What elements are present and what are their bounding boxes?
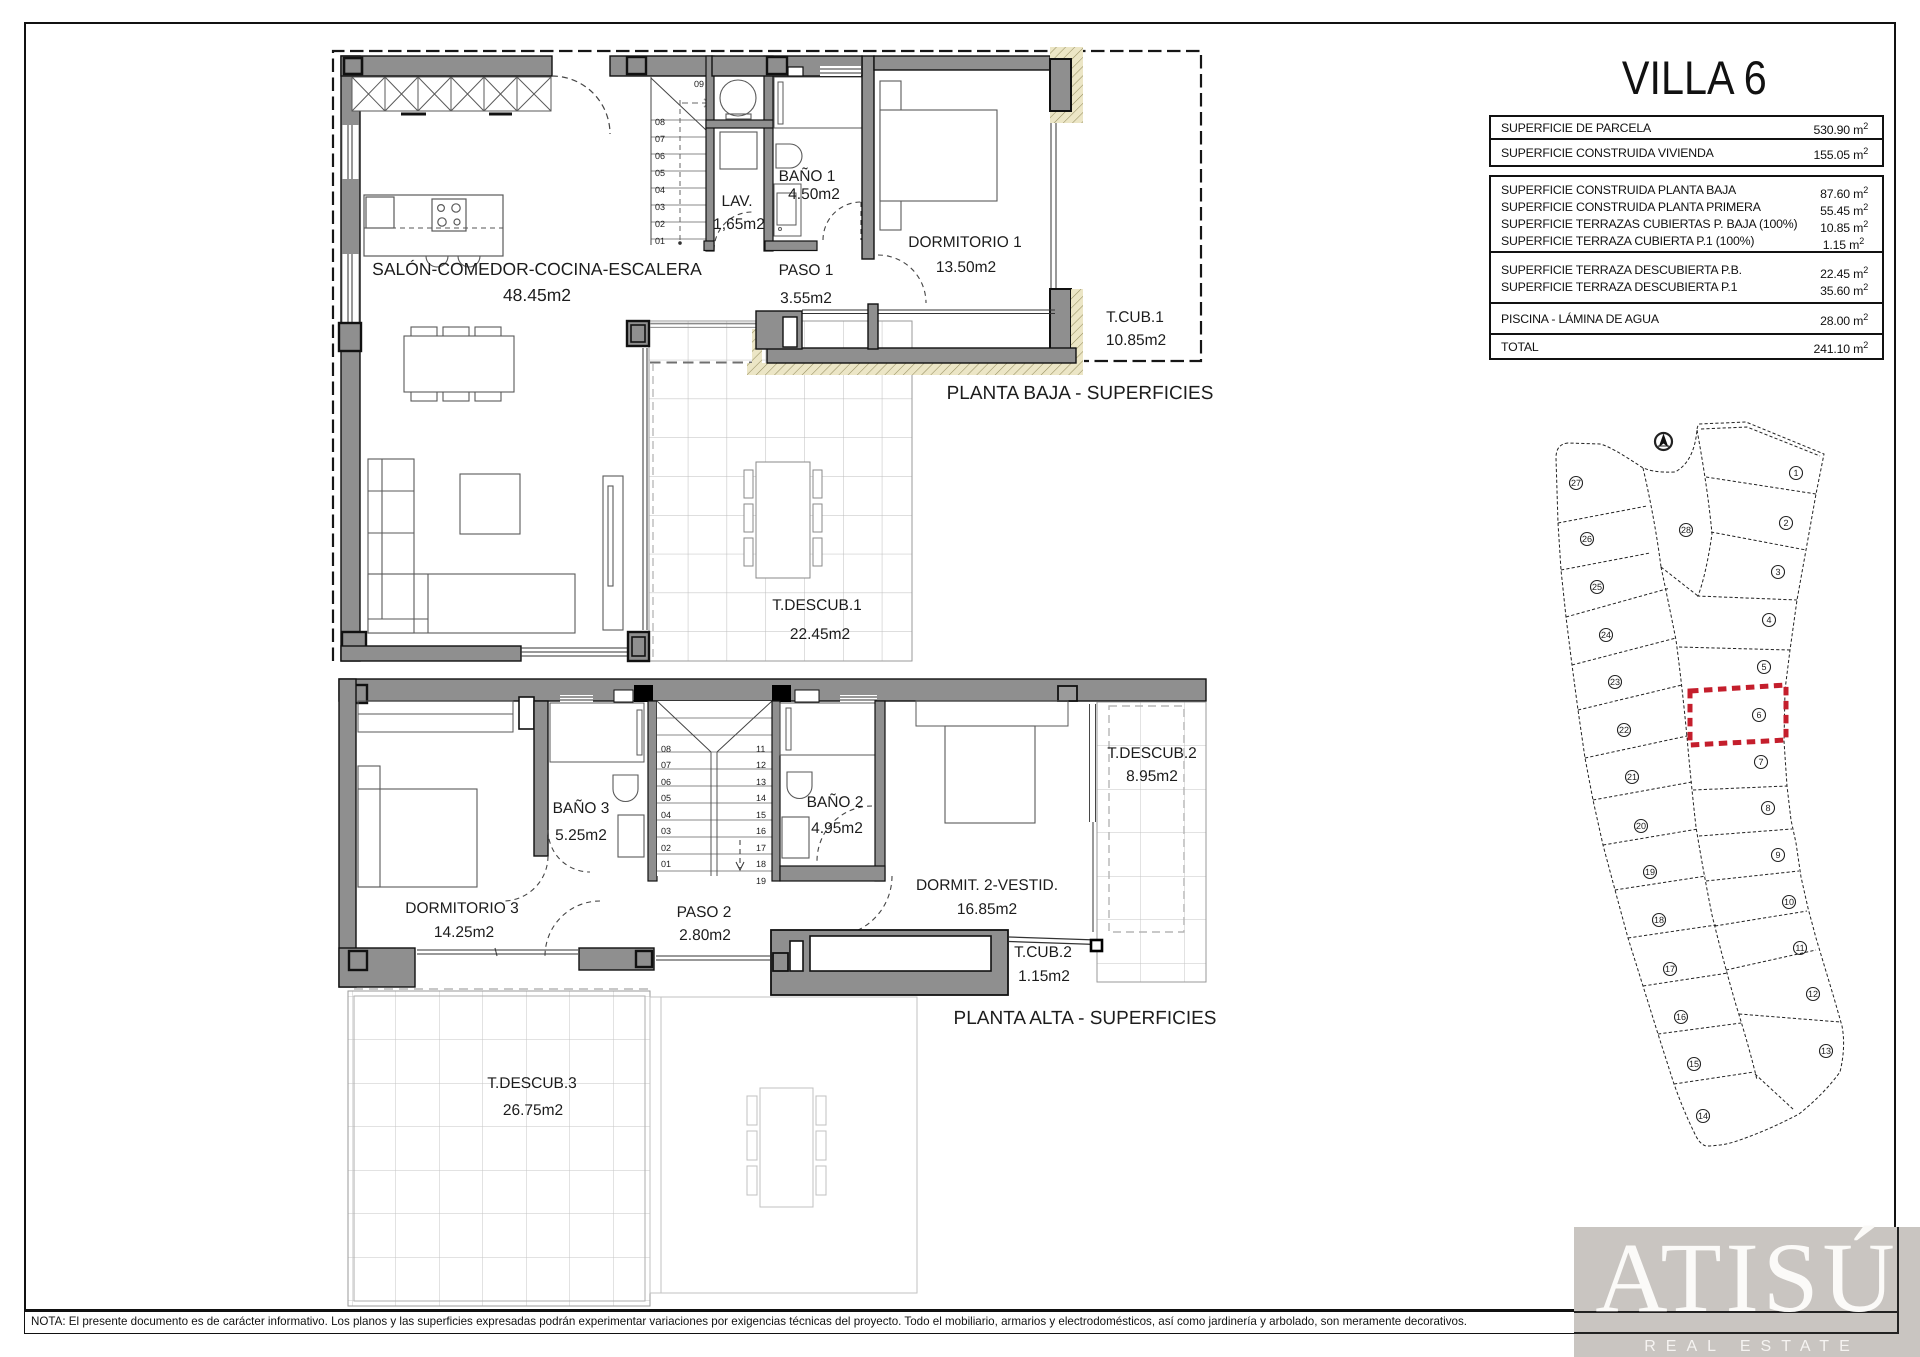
svg-text:BAÑO 1: BAÑO 1 bbox=[779, 167, 836, 185]
svg-text:11: 11 bbox=[756, 744, 765, 754]
svg-text:T.CUB.2: T.CUB.2 bbox=[1014, 944, 1072, 961]
svg-text:48.45m2: 48.45m2 bbox=[503, 285, 571, 305]
svg-text:26: 26 bbox=[1582, 534, 1592, 544]
svg-text:05: 05 bbox=[661, 793, 671, 803]
svg-text:16: 16 bbox=[756, 826, 766, 836]
svg-text:T.DESCUB.3: T.DESCUB.3 bbox=[487, 1075, 577, 1092]
svg-text:04: 04 bbox=[661, 810, 671, 820]
svg-text:17: 17 bbox=[1665, 964, 1675, 974]
svg-text:09: 09 bbox=[694, 79, 704, 89]
svg-text:5: 5 bbox=[1761, 662, 1766, 672]
svg-text:BAÑO 3: BAÑO 3 bbox=[553, 799, 610, 817]
svg-text:4.95m2: 4.95m2 bbox=[811, 820, 863, 837]
svg-text:16.85m2: 16.85m2 bbox=[957, 901, 1017, 918]
svg-text:19: 19 bbox=[756, 876, 766, 886]
svg-text:14: 14 bbox=[1698, 1111, 1708, 1121]
svg-text:24: 24 bbox=[1601, 630, 1611, 640]
svg-text:PASO 1: PASO 1 bbox=[779, 262, 834, 279]
svg-text:SALÓN-COMEDOR-COCINA-ESCALERA: SALÓN-COMEDOR-COCINA-ESCALERA bbox=[372, 259, 702, 279]
svg-text:02: 02 bbox=[661, 843, 671, 853]
svg-text:16: 16 bbox=[1676, 1012, 1686, 1022]
svg-text:T.DESCUB.2: T.DESCUB.2 bbox=[1107, 745, 1197, 762]
svg-text:18: 18 bbox=[1654, 915, 1664, 925]
svg-text:9: 9 bbox=[1775, 850, 1780, 860]
svg-text:06: 06 bbox=[661, 777, 671, 787]
svg-text:02: 02 bbox=[655, 219, 665, 229]
svg-text:8: 8 bbox=[1765, 803, 1770, 813]
svg-text:28: 28 bbox=[1681, 525, 1691, 535]
svg-text:10: 10 bbox=[1784, 897, 1794, 907]
svg-text:03: 03 bbox=[655, 202, 665, 212]
svg-text:8.95m2: 8.95m2 bbox=[1126, 768, 1178, 785]
svg-text:3.55m2: 3.55m2 bbox=[780, 290, 832, 307]
svg-text:27: 27 bbox=[1571, 478, 1581, 488]
svg-text:03: 03 bbox=[661, 826, 671, 836]
svg-text:25: 25 bbox=[1592, 582, 1602, 592]
svg-text:01: 01 bbox=[655, 236, 665, 246]
svg-text:14.25m2: 14.25m2 bbox=[434, 924, 494, 941]
svg-text:17: 17 bbox=[756, 843, 766, 853]
svg-text:07: 07 bbox=[661, 760, 671, 770]
svg-text:T.CUB.1: T.CUB.1 bbox=[1106, 309, 1164, 326]
svg-text:3: 3 bbox=[1775, 567, 1780, 577]
svg-text:12: 12 bbox=[756, 760, 766, 770]
svg-text:2: 2 bbox=[1783, 518, 1788, 528]
svg-text:14: 14 bbox=[756, 793, 766, 803]
svg-text:22: 22 bbox=[1619, 725, 1629, 735]
svg-text:21: 21 bbox=[1627, 772, 1637, 782]
svg-text:11: 11 bbox=[1795, 943, 1804, 953]
svg-text:4.50m2: 4.50m2 bbox=[788, 186, 840, 203]
svg-text:15: 15 bbox=[1689, 1059, 1699, 1069]
svg-text:DORMITORIO 1: DORMITORIO 1 bbox=[908, 234, 1021, 251]
svg-text:12: 12 bbox=[1808, 989, 1818, 999]
svg-text:13: 13 bbox=[1821, 1046, 1831, 1056]
svg-text:22.45m2: 22.45m2 bbox=[790, 626, 850, 643]
svg-text:BAÑO 2: BAÑO 2 bbox=[807, 793, 864, 811]
svg-text:13.50m2: 13.50m2 bbox=[936, 259, 996, 276]
svg-text:PLANTA BAJA - SUPERFICIES: PLANTA BAJA - SUPERFICIES bbox=[947, 383, 1214, 404]
svg-text:DORMITORIO 3: DORMITORIO 3 bbox=[405, 900, 518, 917]
svg-text:26.75m2: 26.75m2 bbox=[503, 1102, 563, 1119]
svg-text:07: 07 bbox=[655, 134, 665, 144]
svg-text:06: 06 bbox=[655, 151, 665, 161]
svg-text:7: 7 bbox=[1758, 757, 1763, 767]
svg-text:1: 1 bbox=[1793, 468, 1798, 478]
svg-text:23: 23 bbox=[1610, 677, 1620, 687]
svg-text:01: 01 bbox=[661, 859, 671, 869]
svg-text:10.85m2: 10.85m2 bbox=[1106, 332, 1166, 349]
svg-text:1,65m2: 1,65m2 bbox=[713, 216, 765, 233]
svg-text:08: 08 bbox=[655, 117, 665, 127]
svg-text:1.15m2: 1.15m2 bbox=[1018, 968, 1070, 985]
svg-text:2.80m2: 2.80m2 bbox=[679, 927, 731, 944]
svg-text:5.25m2: 5.25m2 bbox=[555, 827, 607, 844]
svg-text:20: 20 bbox=[1636, 821, 1646, 831]
svg-text:08: 08 bbox=[661, 744, 671, 754]
svg-text:19: 19 bbox=[1645, 867, 1655, 877]
svg-text:4: 4 bbox=[1766, 615, 1771, 625]
svg-text:15: 15 bbox=[756, 810, 766, 820]
svg-text:18: 18 bbox=[756, 859, 766, 869]
svg-text:05: 05 bbox=[655, 168, 665, 178]
svg-text:T.DESCUB.1: T.DESCUB.1 bbox=[772, 597, 862, 614]
svg-text:PLANTA ALTA - SUPERFICIES: PLANTA ALTA - SUPERFICIES bbox=[954, 1008, 1217, 1029]
svg-text:04: 04 bbox=[655, 185, 665, 195]
svg-text:PASO 2: PASO 2 bbox=[677, 904, 732, 921]
svg-text:LAV.: LAV. bbox=[721, 193, 752, 210]
svg-text:13: 13 bbox=[756, 777, 766, 787]
svg-text:6: 6 bbox=[1756, 710, 1761, 720]
svg-text:DORMIT. 2-VESTID.: DORMIT. 2-VESTID. bbox=[916, 877, 1058, 894]
